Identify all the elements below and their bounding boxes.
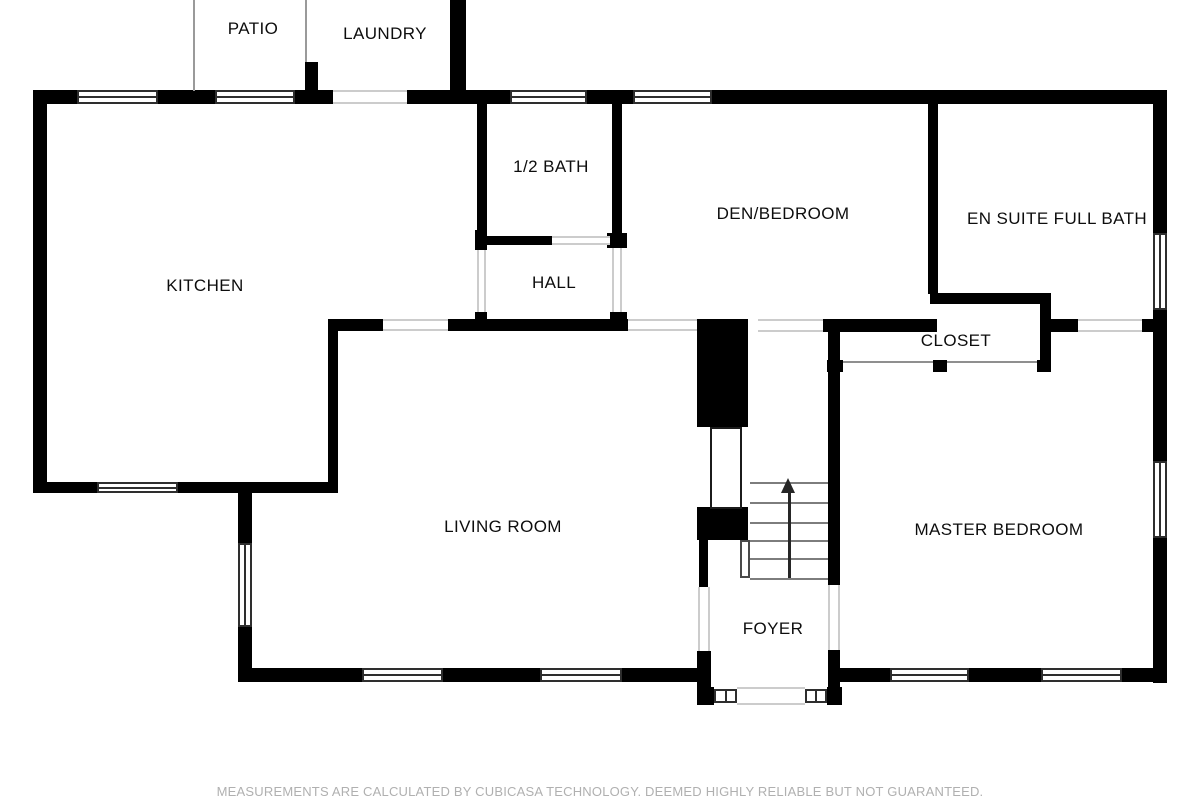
wall-segment	[178, 482, 338, 493]
wall-segment	[1153, 90, 1167, 233]
room-label-closet: CLOSET	[921, 331, 991, 351]
wall-segment	[33, 482, 97, 493]
wall-segment	[443, 668, 540, 682]
window	[77, 90, 158, 104]
wall-segment	[33, 90, 47, 493]
window	[97, 482, 178, 493]
wall-segment	[450, 0, 466, 104]
room-label-laundry: LAUNDRY	[343, 24, 427, 44]
door-opening	[477, 250, 486, 312]
door-opening	[737, 687, 805, 705]
door-opening	[383, 319, 448, 331]
room-label-master-bedroom: MASTER BEDROOM	[914, 520, 1083, 540]
wall-segment	[305, 62, 318, 104]
wall-segment	[328, 319, 383, 331]
wall-segment	[475, 312, 487, 331]
room-label-en-suite-full-bath: EN SUITE FULL BATH	[967, 209, 1147, 229]
wall-segment	[612, 103, 622, 248]
door-opening	[333, 90, 407, 104]
closet-door-line	[947, 361, 1037, 363]
door-opening	[1078, 319, 1142, 332]
door-opening	[552, 236, 610, 245]
door-opening	[698, 587, 710, 651]
floorplan-canvas: PATIOLAUNDRYKITCHEN1/2 BATHHALLDEN/BEDRO…	[0, 0, 1200, 800]
room-label-hall: HALL	[532, 273, 576, 293]
window	[1153, 233, 1167, 310]
wall-segment	[828, 319, 840, 585]
door-opening	[628, 319, 697, 331]
wall-segment	[475, 230, 487, 250]
wall-segment	[697, 507, 748, 540]
wall-segment	[840, 668, 890, 682]
wall-segment	[610, 312, 627, 331]
window	[362, 668, 443, 682]
patio-boundary-line	[193, 0, 195, 91]
door-opening	[828, 585, 840, 650]
wall-segment	[699, 540, 708, 587]
sidelight-window	[714, 689, 737, 703]
window	[540, 668, 622, 682]
wall-segment	[328, 319, 338, 493]
room-label-kitchen: KITCHEN	[166, 276, 243, 296]
wall-segment	[477, 103, 487, 245]
window	[238, 543, 252, 627]
stair-direction-arrow	[788, 492, 791, 578]
floorplan-page: PATIOLAUNDRYKITCHEN1/2 BATHHALLDEN/BEDRO…	[0, 0, 1200, 800]
wall-segment	[697, 319, 748, 427]
door-opening	[612, 248, 622, 312]
wall-segment	[238, 492, 252, 543]
wall-segment	[1122, 668, 1167, 682]
stair-door-leaf	[710, 427, 742, 509]
wall-segment	[933, 360, 947, 372]
patio-boundary-line	[305, 0, 307, 62]
window	[890, 668, 969, 682]
room-label-den-bedroom: DEN/BEDROOM	[717, 204, 850, 224]
disclaimer-text: MEASUREMENTS ARE CALCULATED BY CUBICASA …	[0, 784, 1200, 799]
room-label-half-bath: 1/2 BATH	[513, 157, 589, 177]
wall-segment	[238, 627, 252, 682]
room-label-living-room: LIVING ROOM	[444, 517, 562, 537]
window	[1041, 668, 1122, 682]
window	[633, 90, 712, 104]
wall-segment	[827, 687, 842, 705]
room-label-foyer: FOYER	[743, 619, 804, 639]
wall-segment	[587, 90, 633, 104]
wall-segment	[1153, 538, 1167, 683]
stair-side-rail	[740, 540, 750, 578]
window	[510, 90, 587, 104]
wall-segment	[697, 687, 714, 705]
wall-segment	[607, 233, 627, 248]
window	[1153, 461, 1167, 538]
wall-segment	[477, 236, 552, 245]
wall-segment	[1037, 360, 1051, 372]
stair-arrow-head-icon	[781, 478, 795, 493]
wall-segment	[1048, 319, 1078, 332]
wall-segment	[158, 90, 215, 104]
window	[215, 90, 295, 104]
stair-tread	[750, 578, 828, 580]
wall-segment	[930, 293, 1050, 304]
wall-segment	[712, 90, 1167, 104]
wall-segment	[928, 104, 938, 294]
closet-door-line	[843, 361, 933, 363]
sidelight-window	[805, 689, 827, 703]
wall-segment	[622, 668, 700, 682]
wall-segment	[238, 668, 362, 682]
wall-segment	[1153, 310, 1167, 461]
wall-segment	[969, 668, 1041, 682]
room-label-patio: PATIO	[228, 19, 279, 39]
door-opening	[758, 319, 823, 332]
